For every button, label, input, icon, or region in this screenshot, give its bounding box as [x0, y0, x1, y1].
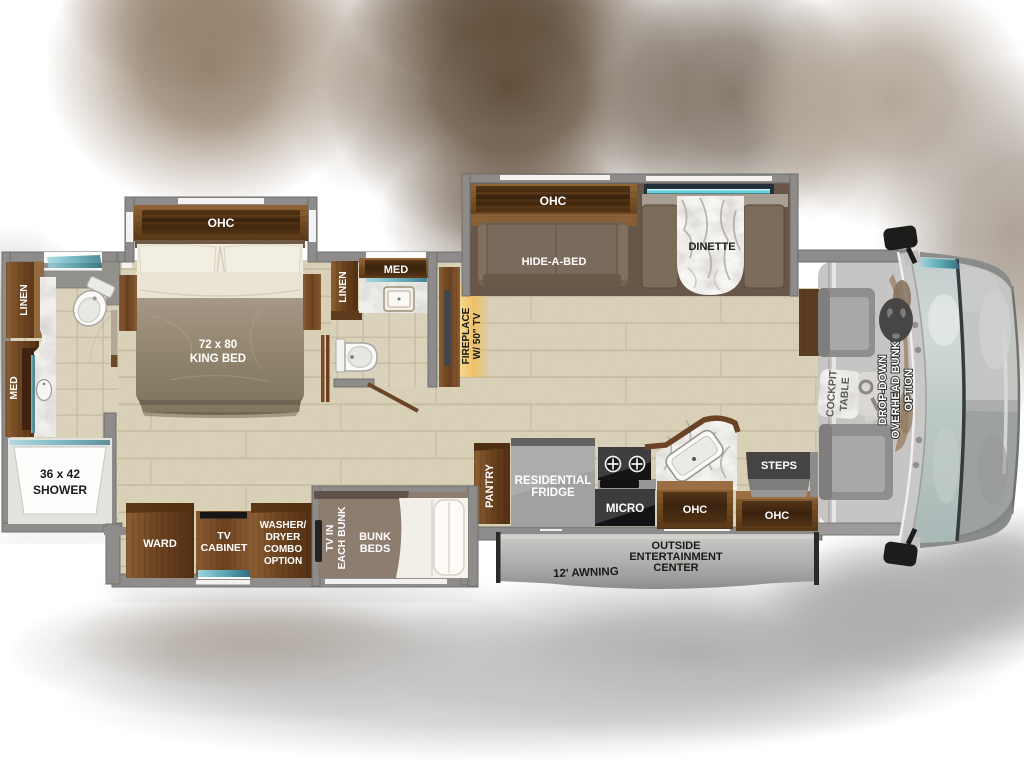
svg-text:HIDE-A-BED: HIDE-A-BED [522, 256, 587, 268]
svg-text:OHC: OHC [208, 216, 235, 230]
svg-text:72 x 80: 72 x 80 [199, 339, 237, 351]
svg-text:DROP-DOWN: DROP-DOWN [877, 355, 889, 425]
svg-text:LINEN: LINEN [337, 271, 349, 303]
svg-text:OHC: OHC [683, 504, 708, 516]
svg-text:BEDS: BEDS [360, 543, 391, 555]
svg-text:OPTION: OPTION [264, 556, 302, 567]
svg-text:RESIDENTIAL: RESIDENTIAL [515, 475, 592, 487]
svg-text:MED: MED [8, 376, 20, 400]
svg-text:OVERHEAD BUNK: OVERHEAD BUNK [890, 341, 902, 438]
svg-text:WARD: WARD [143, 538, 177, 550]
svg-text:OHC: OHC [540, 194, 567, 208]
svg-text:TV IN: TV IN [324, 525, 336, 552]
svg-text:DRYER: DRYER [266, 532, 301, 543]
svg-text:W/ 50" TV: W/ 50" TV [472, 312, 483, 359]
svg-text:WASHER/: WASHER/ [260, 520, 307, 531]
svg-text:SHOWER: SHOWER [33, 483, 87, 497]
svg-text:OPTION: OPTION [903, 369, 915, 411]
svg-text:KING BED: KING BED [190, 353, 246, 365]
svg-text:PANTRY: PANTRY [484, 463, 496, 508]
svg-text:CABINET: CABINET [201, 542, 248, 554]
svg-text:MED: MED [384, 264, 409, 276]
svg-text:CENTER: CENTER [653, 562, 698, 574]
svg-text:LINEN: LINEN [18, 284, 30, 316]
svg-text:12' AWNING: 12' AWNING [553, 566, 619, 580]
svg-text:STEPS: STEPS [761, 460, 797, 472]
svg-text:TV: TV [217, 530, 230, 542]
svg-text:36 x 42: 36 x 42 [40, 467, 80, 481]
svg-text:FRIDGE: FRIDGE [531, 487, 575, 499]
svg-text:DINETTE: DINETTE [688, 241, 735, 253]
svg-text:OHC: OHC [765, 510, 790, 522]
svg-text:BUNK: BUNK [359, 531, 391, 543]
svg-text:COMBO: COMBO [264, 544, 303, 555]
svg-text:MICRO: MICRO [606, 503, 644, 515]
svg-text:EACH BUNK: EACH BUNK [336, 506, 348, 569]
svg-text:FIREPLACE: FIREPLACE [461, 307, 472, 364]
svg-text:TABLE: TABLE [838, 377, 852, 412]
